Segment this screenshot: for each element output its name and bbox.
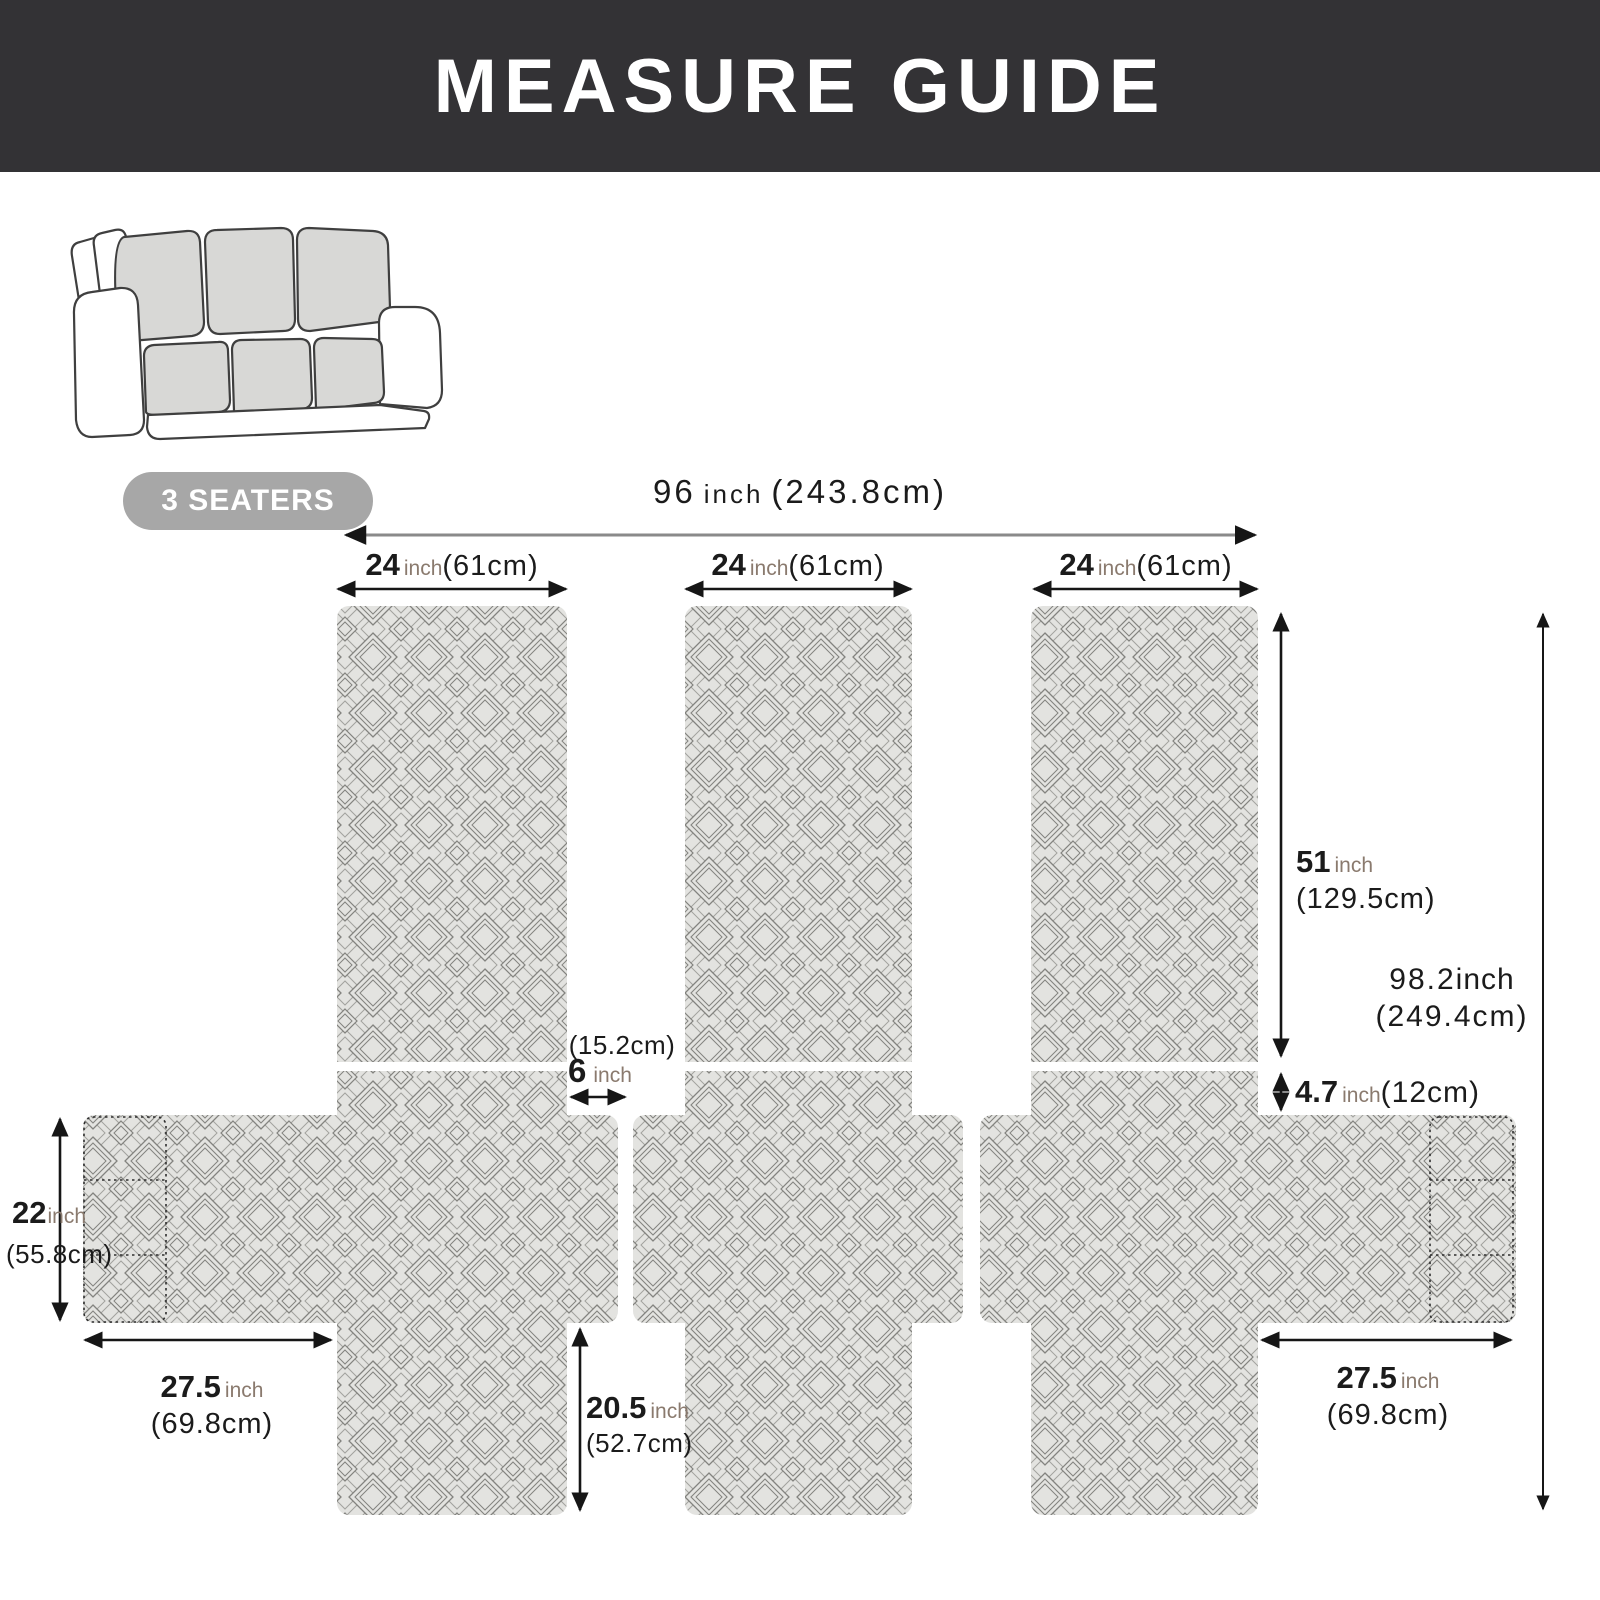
label-panel-width-1: 24inch(61cm) xyxy=(365,548,538,583)
cover-piece-middle xyxy=(633,606,963,1515)
label-side-width-left: 27.5inch (69.8cm) xyxy=(151,1370,273,1440)
label-back-height: 51inch (129.5cm) xyxy=(1296,845,1436,915)
measure-guide-page: MEASURE GUIDE xyxy=(0,0,1600,1600)
label-panel-width-2: 24inch(61cm) xyxy=(711,548,884,583)
label-front-drop: 20.5inch (52.7cm) xyxy=(586,1391,693,1458)
label-strip-gap: 6inch xyxy=(568,1053,632,1090)
label-seat-back-gap: 4.7inch(12cm) xyxy=(1295,1075,1480,1110)
sofa-icon xyxy=(72,228,442,439)
seater-badge: 3 SEATERS xyxy=(123,472,373,530)
label-side-width-right: 27.5inch (69.8cm) xyxy=(1327,1361,1449,1431)
label-total-width: 96inch(243.8cm) xyxy=(653,474,947,511)
label-side-height: 22inch (55.8cm) xyxy=(6,1196,113,1269)
seater-badge-label: 3 SEATERS xyxy=(161,484,335,518)
label-panel-width-3: 24inch(61cm) xyxy=(1059,548,1232,583)
label-total-length: 98.2inch (249.4cm) xyxy=(1375,963,1528,1033)
